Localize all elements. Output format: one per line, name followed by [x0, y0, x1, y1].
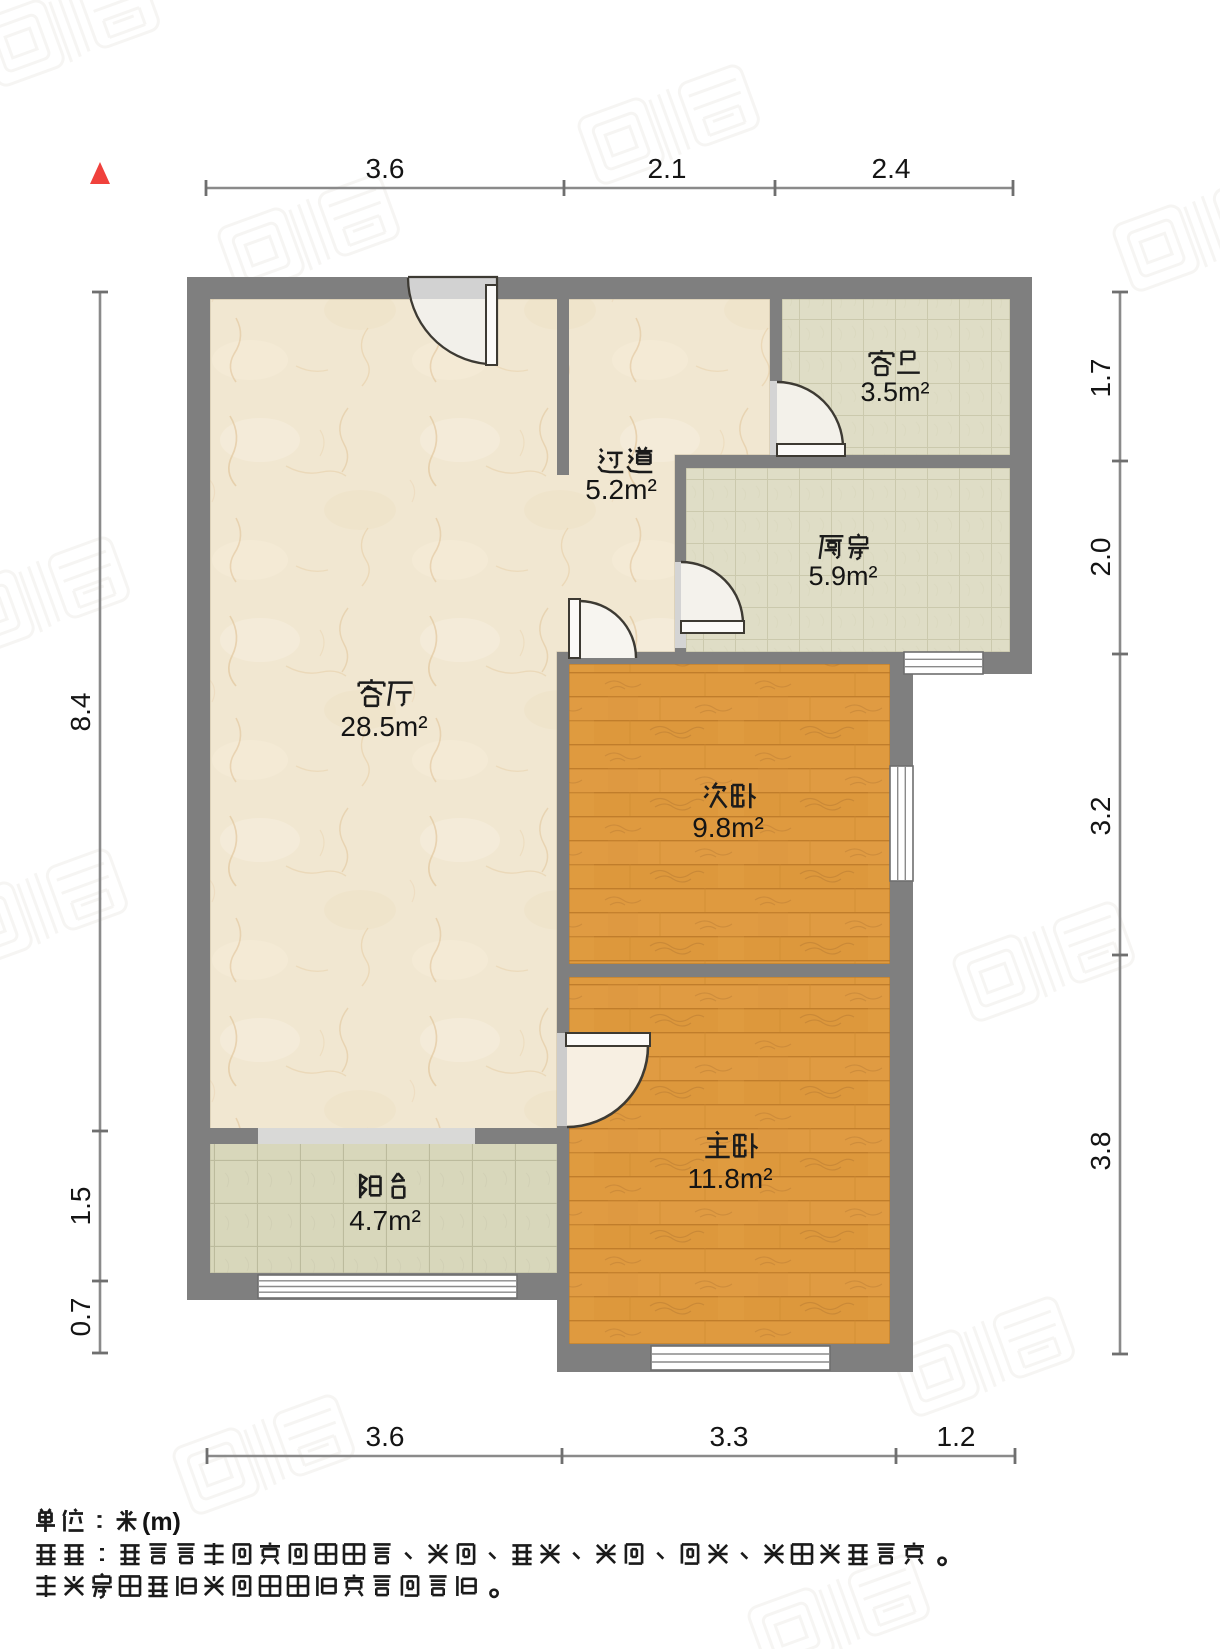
- svg-text:3.5m²: 3.5m²: [860, 377, 929, 407]
- svg-text:5.2m²: 5.2m²: [585, 474, 657, 505]
- svg-text:3.8: 3.8: [1085, 1132, 1116, 1171]
- svg-text:5.9m²: 5.9m²: [808, 561, 877, 591]
- svg-text:1.2: 1.2: [937, 1421, 976, 1452]
- svg-text:2.0: 2.0: [1085, 538, 1116, 577]
- svg-text:4.7m²: 4.7m²: [349, 1205, 421, 1236]
- svg-text:1.7: 1.7: [1085, 359, 1116, 398]
- svg-text:3.6: 3.6: [366, 1421, 405, 1452]
- svg-text:0.7: 0.7: [65, 1298, 96, 1337]
- svg-text:9.8m²: 9.8m²: [692, 812, 764, 843]
- svg-text:(m): (m): [142, 1508, 181, 1536]
- svg-text:8.4: 8.4: [65, 693, 96, 732]
- svg-text:2.1: 2.1: [648, 153, 687, 184]
- svg-text:2.4: 2.4: [872, 153, 911, 184]
- svg-text:3.2: 3.2: [1085, 797, 1116, 836]
- svg-text:1.5: 1.5: [65, 1187, 96, 1226]
- svg-text:11.8m²: 11.8m²: [687, 1163, 772, 1194]
- svg-text:28.5m²: 28.5m²: [340, 711, 427, 742]
- svg-text:3.6: 3.6: [366, 153, 405, 184]
- svg-text:3.3: 3.3: [710, 1421, 749, 1452]
